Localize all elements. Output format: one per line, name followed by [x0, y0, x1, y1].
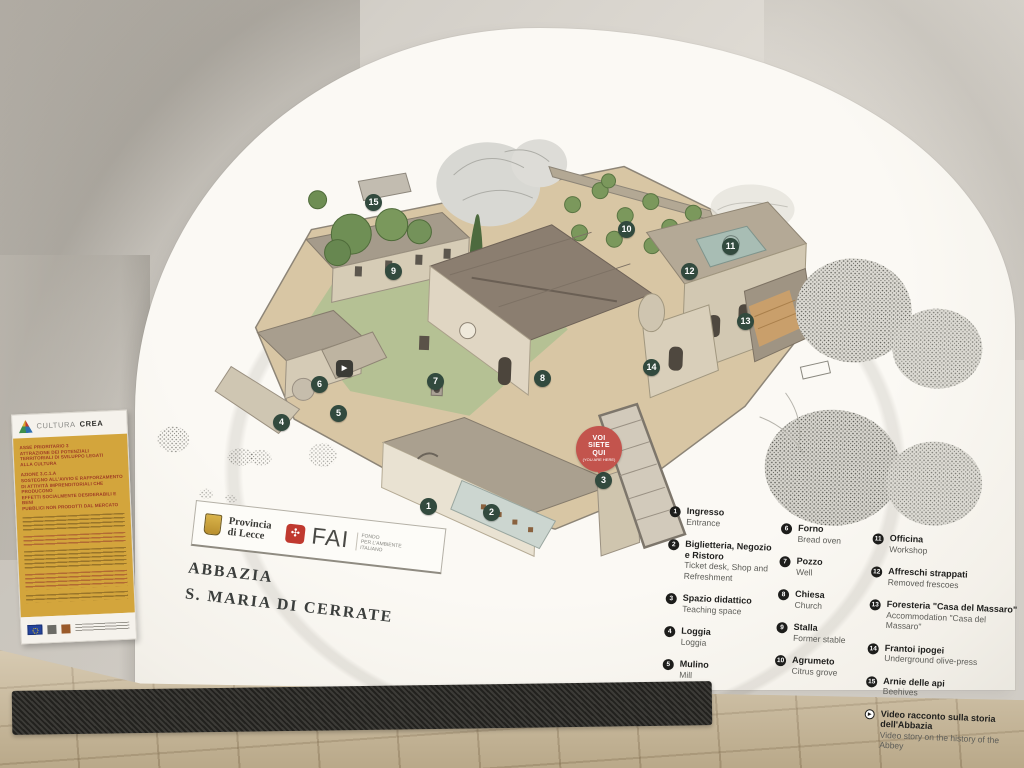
legend-item: 10AgrumetoCitrus grove [774, 654, 859, 679]
legend-name-english: Entrance [686, 516, 724, 528]
legend-number: 12 [871, 566, 882, 577]
legend-label: MulinoMill [679, 659, 709, 681]
provincia-di-lecce-label: Provincia di Lecce [227, 515, 272, 542]
ink-sketches-left [155, 426, 338, 507]
legend-label: PozzoWell [796, 556, 823, 578]
legend-number: 2 [668, 539, 679, 550]
video-icon: ▶ [865, 709, 875, 719]
legend-label: FornoBread oven [797, 523, 841, 546]
legend-label: Foresteria "Casa del Massaro"Accommodati… [886, 599, 1018, 636]
legend-item: 2Biglietteria, Negozio e RistoroTicket d… [667, 538, 773, 585]
legend-name-english: Ticket desk, Shop and Refreshment [684, 560, 772, 585]
poster-text-block2: AZIONE 3.C.1.A SOSTEGNO ALL'AVVIO E RAFF… [21, 468, 125, 512]
legend-label: Spazio didatticoTeaching space [682, 593, 752, 617]
legend-label: Affreschi strappatiRemoved frescoes [888, 566, 968, 591]
fai-logo-icon: ✣ [285, 523, 306, 544]
legend-label: Video racconto sulla storia dell'Abbazia… [879, 708, 1013, 756]
fai-subtitle: FONDO PER L'AMBIENTE ITALIANO [355, 532, 403, 555]
partner-logo-icon [47, 624, 56, 633]
legend-item: 12Affreschi strappatiRemoved frescoes [871, 565, 1020, 593]
you-are-here-pin: VOI SIETE QUI (YOU ARE HERE) [576, 426, 622, 472]
legend-item: 7PozzoWell [779, 555, 864, 580]
legend-column-3: 11OfficinaWorkshop12Affreschi strappatiR… [863, 514, 1022, 768]
legend-item: ▶Video racconto sulla storia dell'Abbazi… [863, 708, 1013, 757]
beehives-area [358, 171, 412, 202]
legend-label: AgrumetoCitrus grove [791, 655, 838, 678]
legend-number: 14 [867, 643, 878, 654]
photo-scene: 123456789101112131415▶ VOI SIETE QUI (YO… [0, 0, 1024, 768]
poster-fine-print [26, 590, 128, 602]
poster-fine-print [25, 569, 128, 589]
legend-label: Biglietteria, Negozio e RistoroTicket de… [684, 539, 773, 585]
cultura-crea-logo-icon [18, 420, 33, 434]
legend-number: 3 [666, 593, 677, 604]
legend-label: ChiesaChurch [794, 589, 824, 611]
legend-number: 11 [872, 533, 883, 544]
legend-name-english: Former stable [793, 632, 846, 645]
poster-fine-print [24, 546, 127, 568]
legend: 1IngressoEntrance2Biglietteria, Negozio … [659, 505, 1024, 768]
provincia-di-lecce-crest-icon [203, 513, 222, 536]
poster-fine-print [23, 531, 125, 545]
legend-item: 5MulinoMill [662, 658, 767, 684]
legend-number: 6 [781, 523, 792, 534]
legend-column-1: 1IngressoEntrance2Biglietteria, Negozio … [659, 505, 774, 757]
legend-label: Arnie delle apiBeehives [883, 675, 945, 699]
eu-flag-icon [27, 624, 42, 635]
legend-column-2: 6FornoBread oven7PozzoWell8ChiesaChurch9… [771, 510, 866, 761]
legend-name-italian: Pozzo [796, 556, 822, 568]
legend-number: 7 [779, 556, 790, 567]
legend-name-english: Loggia [681, 636, 711, 648]
poster-footer-text [75, 622, 129, 632]
legend-item: 15Arnie delle apiBeehives [866, 675, 1015, 703]
legend-number: 10 [775, 655, 786, 666]
legend-label: OfficinaWorkshop [889, 533, 928, 556]
legend-name-english: Workshop [889, 543, 928, 555]
legend-number: 15 [866, 676, 877, 687]
legend-name-italian: Chiesa [795, 589, 825, 601]
legend-item: 13Foresteria "Casa del Massaro"Accommoda… [869, 598, 1018, 636]
legend-label: StallaFormer stable [793, 622, 846, 645]
legend-name-english: Citrus grove [791, 665, 837, 678]
legend-label: IngressoEntrance [686, 506, 724, 529]
cultura-crea-poster: CULTURA CREA ASSE PRIORITARIO 3 ATTRAZIO… [11, 410, 137, 645]
legend-name-italian: Loggia [681, 626, 711, 638]
legend-item: 9StallaFormer stable [776, 621, 861, 646]
legend-name-english: Well [796, 566, 822, 578]
poster-body: ASSE PRIORITARIO 3 ATTRAZIONE DEI POTENZ… [13, 434, 135, 618]
legend-number: 5 [663, 659, 674, 670]
legend-name-english: Bread oven [797, 533, 841, 545]
poster-brand-light: CULTURA [36, 420, 75, 431]
legend-item: 4LoggiaLoggia [664, 625, 769, 651]
partner-logo-icon [61, 624, 70, 633]
legend-item: 11OfficinaWorkshop [872, 532, 1021, 560]
poster-footer [21, 612, 136, 643]
legend-name-italian: Mulino [680, 659, 709, 671]
legend-number: 4 [664, 626, 675, 637]
well [431, 384, 442, 395]
legend-number: 8 [778, 589, 789, 600]
legend-label: Frantoi ipogeiUnderground olive-press [884, 642, 978, 667]
legend-label: LoggiaLoggia [681, 626, 711, 648]
legend-item: 6FornoBread oven [780, 522, 865, 547]
poster-fine-print [23, 512, 126, 530]
legend-number: 13 [869, 599, 880, 610]
legend-name-english: Mill [679, 669, 708, 681]
legend-item: 8ChiesaChurch [777, 588, 862, 613]
you-are-here-label: VOI SIETE QUI [576, 435, 622, 458]
poster-brand-bold: CREA [79, 419, 103, 429]
legend-item: 1IngressoEntrance [669, 505, 774, 531]
legend-number: 9 [776, 622, 787, 633]
fai-wordmark: FAI [310, 522, 350, 553]
legend-name-english: Church [794, 599, 824, 611]
you-are-here-sub: (YOU ARE HERE) [576, 457, 622, 463]
legend-item: 3Spazio didatticoTeaching space [665, 592, 770, 618]
legend-number: 1 [669, 506, 680, 517]
legend-item: 14Frantoi ipogeiUnderground olive-press [867, 642, 1016, 670]
poster-text-block1: ASSE PRIORITARIO 3 ATTRAZIONE DEI POTENZ… [19, 441, 122, 468]
